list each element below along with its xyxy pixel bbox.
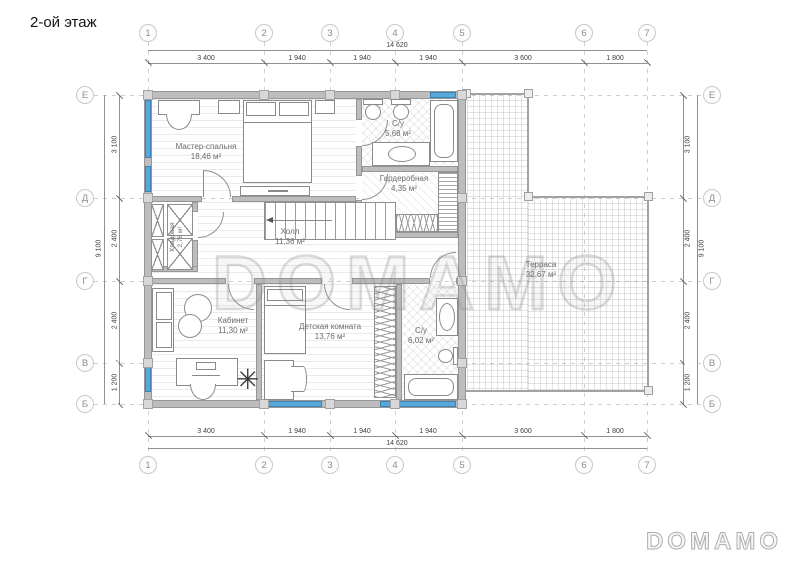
dim-segment: 2 400 [685, 218, 692, 260]
dim-segment: 3 600 [503, 55, 543, 62]
wall-junction [143, 276, 153, 286]
axis-row-b: Б [703, 395, 721, 413]
wall-junction [457, 399, 467, 409]
room-name: С/у [366, 326, 476, 336]
wall-junction [259, 399, 269, 409]
dim-segment: 2 400 [112, 300, 119, 342]
axis-column-5: 5 [453, 24, 471, 42]
sofa-cushion [156, 322, 172, 348]
terrace-edge [527, 196, 649, 198]
nightstand [315, 100, 335, 114]
room-area: 2,76 м² [177, 207, 185, 267]
axis-column-4: 4 [386, 24, 404, 42]
axis-column-3: 3 [321, 456, 339, 474]
terrace-edge [466, 93, 529, 95]
sofa-cushion [156, 292, 172, 320]
dim-segment: 1 940 [277, 55, 317, 62]
dim-segment: 3 600 [503, 428, 543, 435]
room-name: Мастер-спальня [151, 142, 261, 152]
pillow [279, 102, 309, 116]
dim-segment: 1 800 [595, 55, 635, 62]
room-name: С/у [343, 119, 453, 129]
dim-segment: 3 400 [186, 55, 226, 62]
toilet [365, 104, 381, 120]
wall-junction [390, 399, 400, 409]
pillow [246, 102, 276, 116]
wall-junction [325, 399, 335, 409]
axis-row-v: В [76, 354, 94, 372]
room-closet-label: Кладовая 2,76 м² [169, 207, 187, 267]
sink [388, 146, 416, 162]
wall-junction [143, 358, 153, 368]
bidet [393, 104, 409, 120]
terrace-edge [527, 93, 529, 198]
dim-total-width-bottom: 14 620 [377, 440, 417, 447]
dim-segment: 3 100 [112, 124, 119, 166]
terrace-post [524, 89, 533, 98]
axis-row-v: В [703, 354, 721, 372]
dim-segment: 3 400 [186, 428, 226, 435]
window [145, 166, 151, 192]
axis-row-b: Б [76, 395, 94, 413]
dim-segment: 1 940 [342, 55, 382, 62]
axis-column-1: 1 [139, 24, 157, 42]
wardrobe-hanger-rack [396, 214, 438, 232]
dim-line-left-segments [119, 95, 120, 404]
axis-column-3: 3 [321, 24, 339, 42]
dim-total-height-left: 9 100 [96, 228, 103, 270]
room-bath2-label: С/у 6,02 м² [366, 326, 476, 347]
plant-icon: ✳ [236, 366, 259, 394]
wall-interior [356, 99, 362, 120]
dim-segment: 1 940 [277, 428, 317, 435]
room-wardrobe-label: Гардеробная 4,35 м² [349, 174, 459, 195]
wall-junction [143, 90, 153, 100]
dim-total-width-top: 14 620 [377, 42, 417, 49]
bathtub-inner [408, 378, 454, 396]
blanket-line [243, 122, 312, 123]
wall-junction [259, 90, 269, 100]
toilet [438, 349, 453, 363]
wall-junction [457, 358, 467, 368]
laptop [196, 362, 216, 370]
window [430, 92, 456, 98]
wall-junction [143, 193, 153, 203]
axis-column-1: 1 [139, 456, 157, 474]
axis-column-2: 2 [255, 456, 273, 474]
window [266, 401, 322, 407]
axis-column-4: 4 [386, 456, 404, 474]
dim-segment: 1 200 [685, 362, 692, 404]
axis-column-7: 7 [638, 24, 656, 42]
closet-cabinet [151, 239, 164, 270]
dim-segment: 1 800 [595, 428, 635, 435]
dresser-detail [268, 190, 288, 192]
door-leaf [203, 170, 204, 197]
dim-total-height-right: 9 100 [699, 228, 706, 270]
wall-junction [143, 399, 153, 409]
room-master-label: Мастер-спальня 18,46 м² [151, 142, 261, 163]
dim-segment: 1 200 [112, 362, 119, 404]
watermark: DOMAMO [212, 240, 627, 327]
terrace-post [644, 192, 653, 201]
axis-row-e: Е [703, 86, 721, 104]
wall-outer-top [144, 91, 466, 99]
brand-logo: DOMAMO [646, 528, 782, 556]
axis-column-6: 6 [575, 24, 593, 42]
dim-segment: 2 400 [112, 218, 119, 260]
terrace-edge [466, 390, 649, 392]
kids-desk [264, 360, 294, 400]
stairs-direction-line [272, 220, 332, 221]
axis-row-g: Г [703, 272, 721, 290]
room-name: Гардеробная [349, 174, 459, 184]
dim-line-top-total [148, 50, 647, 51]
axis-column-2: 2 [255, 24, 273, 42]
page-title: 2-ой этаж [30, 14, 97, 31]
room-area: 4,35 м² [349, 184, 459, 194]
closet-cabinet [151, 204, 164, 237]
axis-row-d: Д [76, 189, 94, 207]
room-name: Кладовая [169, 207, 177, 267]
desk-detail [192, 375, 220, 376]
axis-row-d: Д [703, 189, 721, 207]
kids-chair [291, 366, 307, 392]
dim-segment: 2 400 [685, 300, 692, 342]
room-area: 18,46 м² [151, 152, 261, 162]
axis-row-e: Е [76, 86, 94, 104]
terrace-post [524, 192, 533, 201]
room-name: Холл [235, 227, 345, 237]
axis-column-7: 7 [638, 456, 656, 474]
dim-segment: 1 940 [342, 428, 382, 435]
dim-line-bottom-total [148, 448, 647, 449]
axis-row-g: Г [76, 272, 94, 290]
terrace-post [644, 386, 653, 395]
room-bath1-label: С/у 5,68 м² [343, 119, 453, 140]
toilet-tank [453, 347, 458, 365]
room-area: 11,30 м² [178, 326, 288, 336]
floor-plan-canvas: 2-ой этаж [0, 0, 800, 566]
nightstand [218, 100, 240, 114]
dim-segment: 3 100 [685, 124, 692, 166]
wall-junction [325, 90, 335, 100]
axis-column-6: 6 [575, 456, 593, 474]
room-area: 5,68 м² [343, 129, 453, 139]
room-area: 6,02 м² [366, 336, 476, 346]
axis-column-5: 5 [453, 456, 471, 474]
dim-segment: 1 940 [408, 55, 448, 62]
stairs-arrow-icon [266, 217, 273, 223]
desk [158, 100, 200, 115]
dim-line-left-total [104, 95, 105, 404]
terrace-edge [647, 196, 649, 392]
wall-junction [457, 90, 467, 100]
dim-segment: 1 940 [408, 428, 448, 435]
